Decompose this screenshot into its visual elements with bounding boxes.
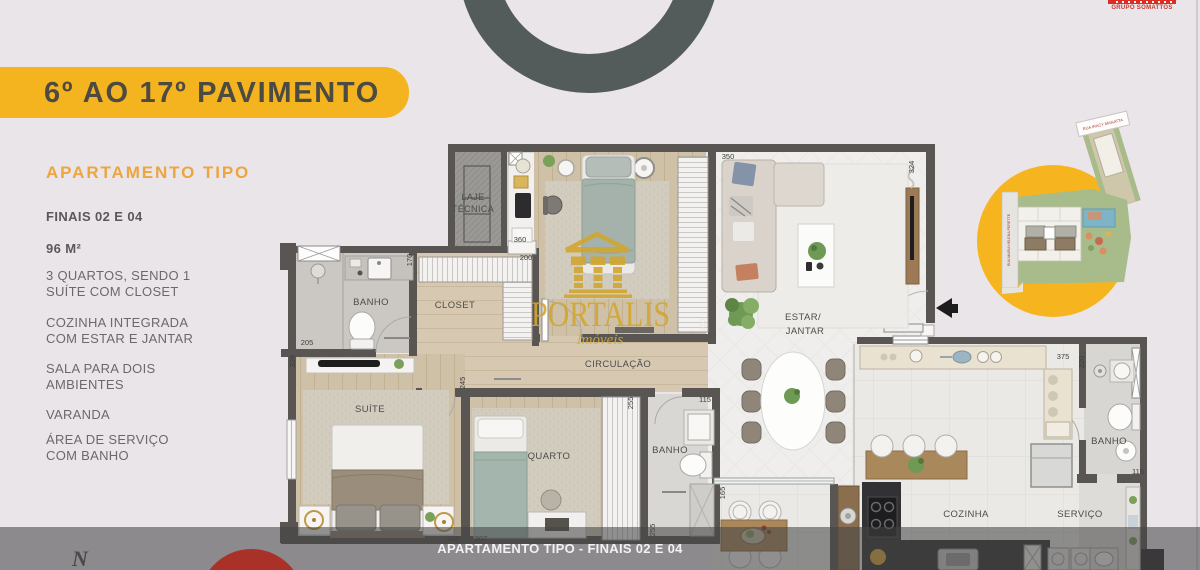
svg-text:324: 324 (907, 161, 916, 174)
svg-text:ESTAR/: ESTAR/ (785, 312, 821, 323)
svg-text:165: 165 (718, 487, 727, 500)
svg-text:RUA MARIA HELENA PERETTE: RUA MARIA HELENA PERETTE (1007, 213, 1011, 266)
svg-text:245: 245 (458, 377, 467, 390)
svg-text:115: 115 (699, 395, 711, 404)
svg-text:SUÍTE: SUÍTE (355, 404, 385, 415)
svg-text:BANHO: BANHO (353, 297, 389, 308)
svg-text:320: 320 (698, 319, 707, 332)
svg-text:350: 350 (722, 152, 735, 161)
svg-text:BANHO: BANHO (1091, 436, 1127, 447)
svg-text:JANTAR: JANTAR (786, 326, 825, 337)
svg-text:255: 255 (626, 397, 635, 410)
svg-text:BANHO: BANHO (652, 445, 688, 456)
svg-text:COZINHA: COZINHA (943, 509, 989, 520)
svg-text:170: 170 (405, 254, 414, 267)
svg-text:QUARTO: QUARTO (528, 451, 571, 462)
svg-text:SERVIÇO: SERVIÇO (1057, 509, 1102, 520)
svg-text:220: 220 (1077, 356, 1086, 369)
svg-text:375: 375 (1057, 352, 1070, 361)
svg-text:360: 360 (514, 235, 527, 244)
svg-text:TÉCNICA: TÉCNICA (452, 204, 494, 214)
svg-text:326: 326 (288, 355, 297, 368)
svg-text:115: 115 (1132, 467, 1144, 476)
svg-text:Imóveis: Imóveis (576, 332, 624, 348)
svg-text:PORTALIS: PORTALIS (531, 294, 670, 334)
svg-text:LAJE: LAJE (461, 192, 484, 202)
svg-text:205: 205 (301, 338, 314, 347)
svg-text:CLOSET: CLOSET (435, 300, 475, 311)
svg-text:200: 200 (520, 253, 533, 262)
svg-text:CIRCULAÇÃO: CIRCULAÇÃO (585, 359, 651, 370)
